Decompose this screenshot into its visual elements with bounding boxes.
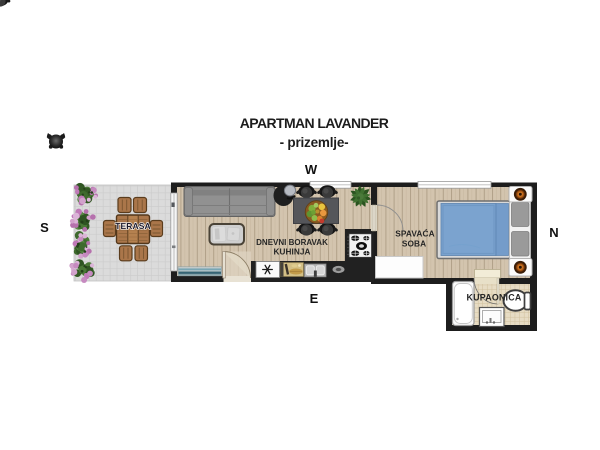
svg-text:TERASA: TERASA <box>115 221 151 231</box>
svg-text:N: N <box>549 225 558 240</box>
svg-text:SOBA: SOBA <box>402 239 426 249</box>
svg-text:KUHINJA: KUHINJA <box>273 248 310 257</box>
svg-text:APARTMAN LAVANDER: APARTMAN LAVANDER <box>240 115 389 131</box>
svg-text:KUPAONICA: KUPAONICA <box>467 293 522 303</box>
svg-text:SPAVAĆA: SPAVAĆA <box>395 228 434 239</box>
svg-text:S: S <box>40 220 49 235</box>
svg-text:W: W <box>305 162 318 177</box>
svg-text:DNEVNI BORAVAK: DNEVNI BORAVAK <box>256 238 328 247</box>
svg-text:E: E <box>310 291 319 306</box>
svg-text:- prizemlje-: - prizemlje- <box>280 135 349 150</box>
